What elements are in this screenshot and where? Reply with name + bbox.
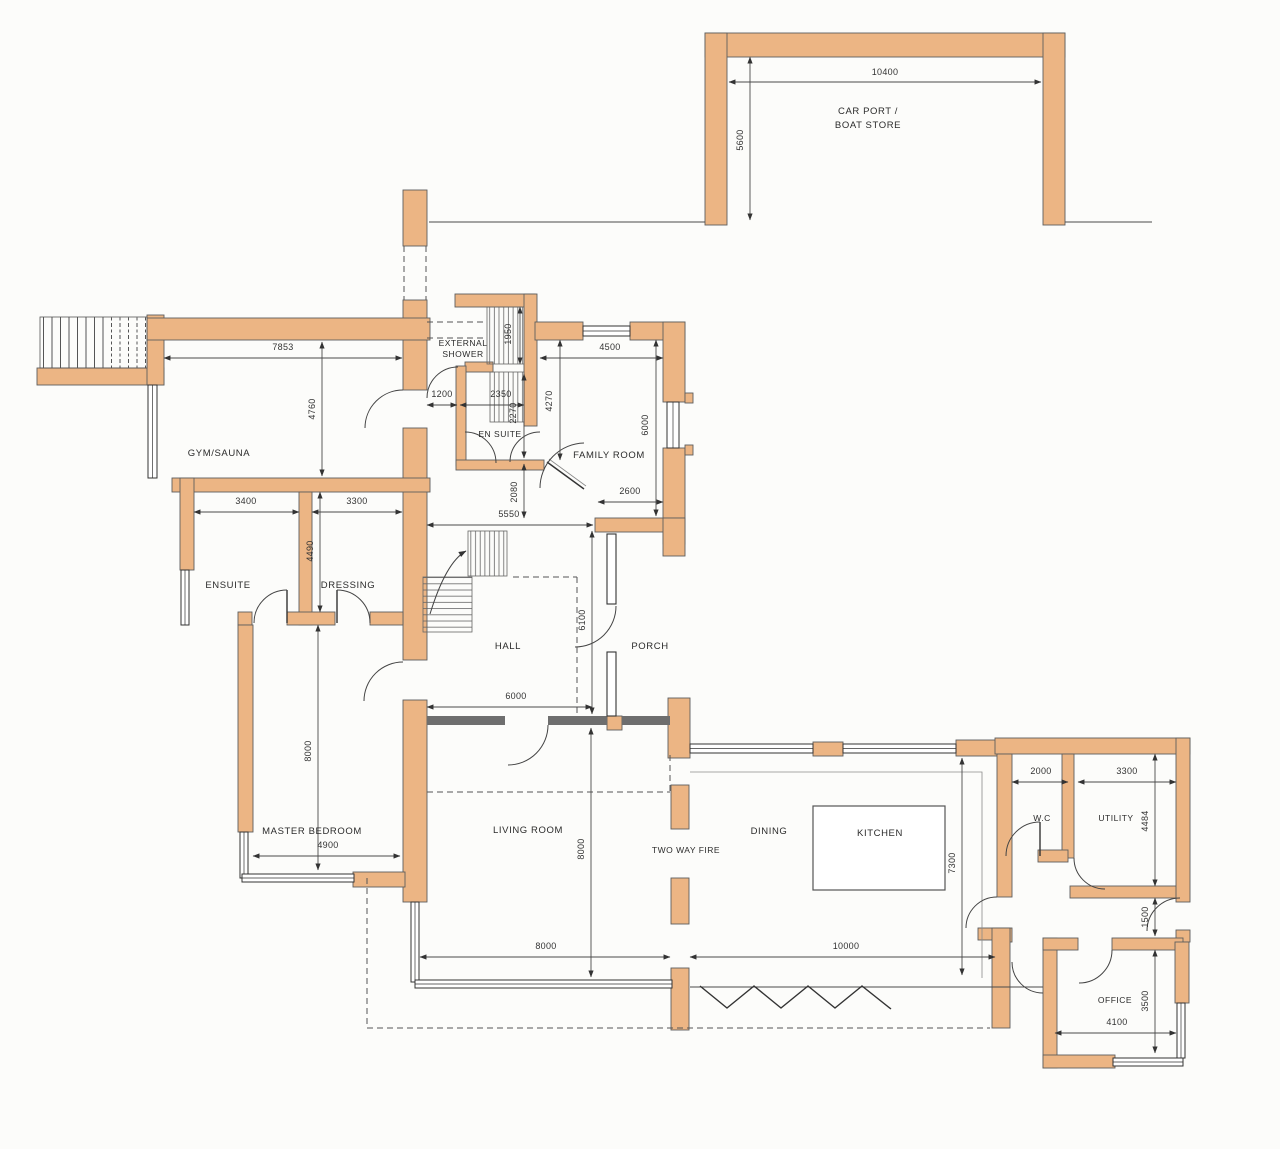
- wall-segment: [1176, 738, 1190, 902]
- wall-segment: [172, 478, 430, 492]
- wall-segment: [663, 518, 685, 556]
- dim-value: 2600: [619, 486, 640, 496]
- dim-value: 2000: [1030, 766, 1051, 776]
- window: [690, 744, 813, 753]
- window: [667, 402, 679, 448]
- wall-segment: [403, 700, 427, 902]
- dim-value: 1200: [431, 389, 452, 399]
- wall-segment: [238, 625, 253, 832]
- dim-value: 4270: [544, 390, 554, 411]
- wall-segment: [685, 445, 693, 455]
- dim-value: 10000: [833, 941, 860, 951]
- dim-value: 3300: [346, 496, 367, 506]
- room-label-car-port: BOAT STORE: [835, 120, 901, 131]
- room-label-en-suite: EN SUITE: [478, 429, 521, 439]
- dim-value: 10400: [872, 67, 899, 77]
- dim-value: 4100: [1106, 1017, 1127, 1027]
- dim-value: 1950: [503, 323, 513, 344]
- window: [1177, 1003, 1185, 1058]
- wall-segment: [1070, 886, 1178, 898]
- wall-segment: [997, 754, 1012, 897]
- wall-segment: [180, 478, 194, 570]
- room-label-office: OFFICE: [1098, 995, 1132, 1005]
- wall-segment: [524, 294, 537, 426]
- deck-steps-dashed: [104, 317, 147, 368]
- room-label-ensuite: ENSUITE: [205, 580, 250, 591]
- dim-value: 4500: [599, 342, 620, 352]
- dim-value: 3300: [1116, 766, 1137, 776]
- partition-wall: [427, 716, 505, 725]
- dim-value: 4490: [305, 540, 315, 561]
- wall-segment: [668, 698, 690, 758]
- dim-value: 2270: [508, 402, 518, 423]
- room-label-master-bedroom: MASTER BEDROOM: [262, 826, 362, 837]
- kitchen-island: [813, 806, 945, 890]
- wall-segment: [353, 872, 405, 887]
- fireplace-block: [671, 785, 689, 829]
- dim-value: 8000: [576, 838, 586, 859]
- wall-segment: [1038, 850, 1068, 862]
- fireplace-block: [671, 878, 689, 924]
- window: [583, 326, 630, 336]
- partition-wall: [622, 716, 670, 725]
- wall-segment: [238, 612, 252, 625]
- window: [181, 570, 189, 625]
- deck-steps: [40, 317, 104, 368]
- wall-segment: [1043, 938, 1057, 1068]
- window: [411, 902, 419, 982]
- dim-value: 6100: [577, 609, 587, 630]
- room-label-wc: W.C: [1033, 813, 1051, 823]
- wall-segment: [956, 740, 998, 756]
- wall-segment: [705, 33, 727, 225]
- room-label-porch: PORCH: [631, 641, 668, 652]
- wall-segment: [813, 742, 843, 756]
- dim-value: 5550: [498, 509, 519, 519]
- window: [843, 744, 956, 753]
- wall-segment: [147, 318, 430, 340]
- window: [240, 832, 248, 878]
- room-label-two-way-fire: TWO WAY FIRE: [652, 845, 720, 855]
- dim-value: 8000: [535, 941, 556, 951]
- dim-value: 1500: [1140, 906, 1150, 927]
- wall-segment: [671, 968, 689, 1030]
- partition-wall: [548, 716, 607, 725]
- dim-value: 2350: [490, 389, 511, 399]
- dim-value: 7853: [272, 342, 293, 352]
- room-label-living-room: LIVING ROOM: [493, 825, 563, 836]
- dim-value: 8000: [303, 740, 313, 761]
- wall-segment: [685, 393, 693, 403]
- floor-plan-drawing: 10400 5600 7853 4760 1200 2350 2270 1950…: [0, 0, 1280, 1149]
- room-label-kitchen: KITCHEN: [857, 828, 903, 839]
- wall-segment: [403, 190, 427, 246]
- wall-segment: [370, 612, 403, 625]
- dim-value: 4484: [1140, 810, 1150, 831]
- wall-segment: [663, 322, 685, 402]
- wall-segment: [1175, 942, 1189, 1003]
- wall-segment: [995, 738, 1190, 754]
- wall-segment: [535, 322, 583, 340]
- room-label-utility: UTILITY: [1098, 813, 1133, 823]
- dim-value: 2080: [509, 481, 519, 502]
- wall-segment: [456, 366, 466, 466]
- room-label-external-shower: EXTERNAL: [439, 338, 488, 348]
- room-label-gym-sauna: GYM/SAUNA: [188, 448, 250, 459]
- window: [148, 385, 157, 478]
- room-label-dining: DINING: [751, 826, 788, 837]
- dim-value: 4760: [307, 398, 317, 419]
- room-label-dressing: DRESSING: [321, 580, 375, 591]
- dim-value: 3400: [235, 496, 256, 506]
- dim-value: 6000: [505, 691, 526, 701]
- wall-segment: [1062, 754, 1074, 858]
- hall-stair-lower: [423, 577, 472, 632]
- window: [242, 874, 354, 882]
- window: [415, 980, 672, 988]
- window: [1113, 1058, 1183, 1066]
- dim-value: 5600: [735, 129, 745, 150]
- room-label-external-shower: SHOWER: [442, 349, 483, 359]
- room-label-hall: HALL: [495, 641, 521, 652]
- room-label-car-port: CAR PORT /: [838, 106, 898, 117]
- room-label-family-room: FAMILY ROOM: [573, 450, 645, 461]
- wall-segment: [403, 300, 427, 390]
- wall-segment: [1043, 1055, 1115, 1068]
- wall-segment: [1043, 33, 1065, 225]
- dim-value: 6000: [640, 414, 650, 435]
- wall-segment: [37, 368, 164, 385]
- dim-value: 4900: [317, 840, 338, 850]
- wall-segment: [1043, 938, 1078, 950]
- wall-segment: [287, 612, 335, 625]
- wall-segment: [1112, 938, 1183, 950]
- dim-value: 3500: [1140, 990, 1150, 1011]
- wall-segment: [992, 928, 1010, 1028]
- floor-plan-page: 10400 5600 7853 4760 1200 2350 2270 1950…: [0, 0, 1280, 1149]
- paper-background: [0, 0, 1280, 1149]
- wall-segment: [455, 294, 535, 307]
- wall-segment: [456, 460, 544, 470]
- wall-segment: [607, 716, 622, 730]
- dim-value: 7300: [947, 852, 957, 873]
- wall-segment: [705, 33, 1065, 57]
- hall-stair-upper: [468, 531, 507, 576]
